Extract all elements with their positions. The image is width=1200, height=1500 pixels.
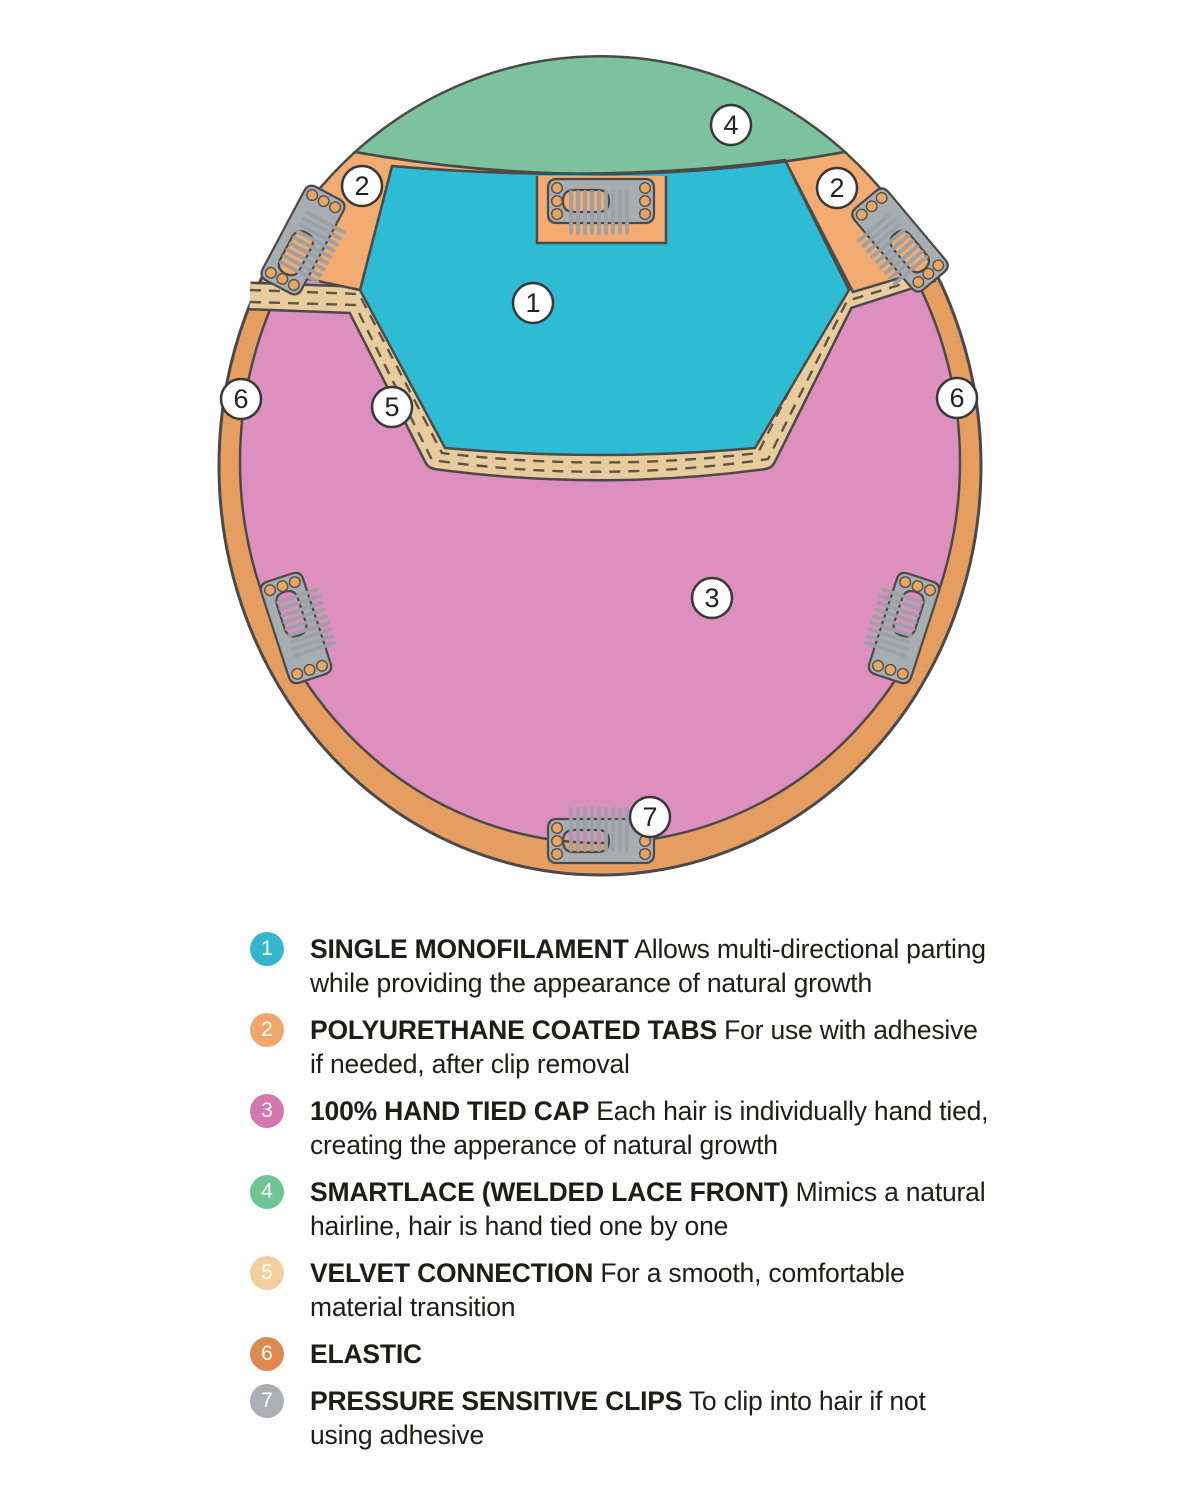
svg-text:3: 3 xyxy=(704,583,719,613)
legend-item: 7 PRESSURE SENSITIVE CLIPS To clip into … xyxy=(250,1384,988,1452)
legend-description-line2: material transition xyxy=(310,1292,515,1322)
callout-5-velvet-connection: 5 xyxy=(372,387,412,427)
legend-description-line2: while providing the appearance of natura… xyxy=(310,968,872,998)
svg-text:7: 7 xyxy=(642,802,657,832)
legend-term: SINGLE MONOFILAMENT xyxy=(310,934,629,964)
svg-text:5: 5 xyxy=(384,392,399,422)
legend-item: 1 SINGLE MONOFILAMENT Allows multi-direc… xyxy=(250,932,988,1000)
callout-1-single-monofilament: 1 xyxy=(513,283,553,323)
smartlace-area xyxy=(355,56,845,174)
legend-item: 6 ELASTIC xyxy=(250,1337,988,1371)
svg-text:2: 2 xyxy=(354,171,369,201)
legend-number-badge: 3 xyxy=(250,1094,284,1128)
legend-number-badge: 6 xyxy=(250,1337,284,1371)
legend-term: PRESSURE SENSITIVE CLIPS xyxy=(310,1386,682,1416)
legend-description-line2: hairline, hair is hand tied one by one xyxy=(310,1211,728,1241)
callout-6-right-elastic: 6 xyxy=(937,378,977,418)
legend-number-badge: 1 xyxy=(250,932,284,966)
legend-item: 4 SMARTLACE (WELDED LACE FRONT) Mimics a… xyxy=(250,1175,988,1243)
svg-text:1: 1 xyxy=(525,288,540,318)
legend-term: POLYURETHANE COATED TABS xyxy=(310,1015,717,1045)
svg-text:2: 2 xyxy=(829,173,844,203)
legend-term: VELVET CONNECTION xyxy=(310,1258,593,1288)
legend-term: ELASTIC xyxy=(310,1339,422,1369)
wig-cap-diagram: 1 2 2 3 4 5 6 6 7 xyxy=(0,0,1200,920)
legend-text: ELASTIC xyxy=(310,1337,422,1371)
legend-number-badge: 7 xyxy=(250,1384,284,1418)
legend-item: 5 VELVET CONNECTION For a smooth, comfor… xyxy=(250,1256,988,1324)
callout-4-smartlace: 4 xyxy=(711,105,751,145)
svg-text:6: 6 xyxy=(233,384,248,414)
legend-number-badge: 2 xyxy=(250,1013,284,1047)
legend-description-line1: Each hair is individually hand tied, xyxy=(589,1096,988,1126)
legend-description-line2: using adhesive xyxy=(310,1420,484,1450)
callout-6-left-elastic: 6 xyxy=(221,379,261,419)
legend-text: PRESSURE SENSITIVE CLIPS To clip into ha… xyxy=(310,1384,926,1452)
legend-text: 100% HAND TIED CAP Each hair is individu… xyxy=(310,1094,988,1162)
callout-7-pressure-clip: 7 xyxy=(630,797,670,837)
callout-2-left-polyurethane-tab: 2 xyxy=(342,166,382,206)
legend-description-line1: For use with adhesive xyxy=(717,1015,978,1045)
legend-description-line1: Allows multi-directional parting xyxy=(629,934,986,964)
legend-description-line2: creating the apperance of natural growth xyxy=(310,1130,778,1160)
legend-description-line2: if needed, after clip removal xyxy=(310,1049,630,1079)
legend-item: 2 POLYURETHANE COATED TABS For use with … xyxy=(250,1013,988,1081)
legend-number-badge: 4 xyxy=(250,1175,284,1209)
callout-2-right-polyurethane-tab: 2 xyxy=(817,168,857,208)
svg-text:6: 6 xyxy=(949,383,964,413)
legend-text: SINGLE MONOFILAMENT Allows multi-directi… xyxy=(310,932,986,1000)
legend: 1 SINGLE MONOFILAMENT Allows multi-direc… xyxy=(250,932,988,1452)
legend-term: SMARTLACE (WELDED LACE FRONT) xyxy=(310,1177,789,1207)
legend-number-badge: 5 xyxy=(250,1256,284,1290)
legend-text: SMARTLACE (WELDED LACE FRONT) Mimics a n… xyxy=(310,1175,985,1243)
legend-text: POLYURETHANE COATED TABS For use with ad… xyxy=(310,1013,978,1081)
legend-description-line1: To clip into hair if not xyxy=(682,1386,925,1416)
legend-item: 3 100% HAND TIED CAP Each hair is indivi… xyxy=(250,1094,988,1162)
svg-text:4: 4 xyxy=(723,110,738,140)
legend-text: VELVET CONNECTION For a smooth, comforta… xyxy=(310,1256,905,1324)
legend-term: 100% HAND TIED CAP xyxy=(310,1096,589,1126)
legend-description-line1: For a smooth, comfortable xyxy=(593,1258,904,1288)
legend-description-line1: Mimics a natural xyxy=(789,1177,986,1207)
callout-3-hand-tied-cap: 3 xyxy=(692,578,732,618)
